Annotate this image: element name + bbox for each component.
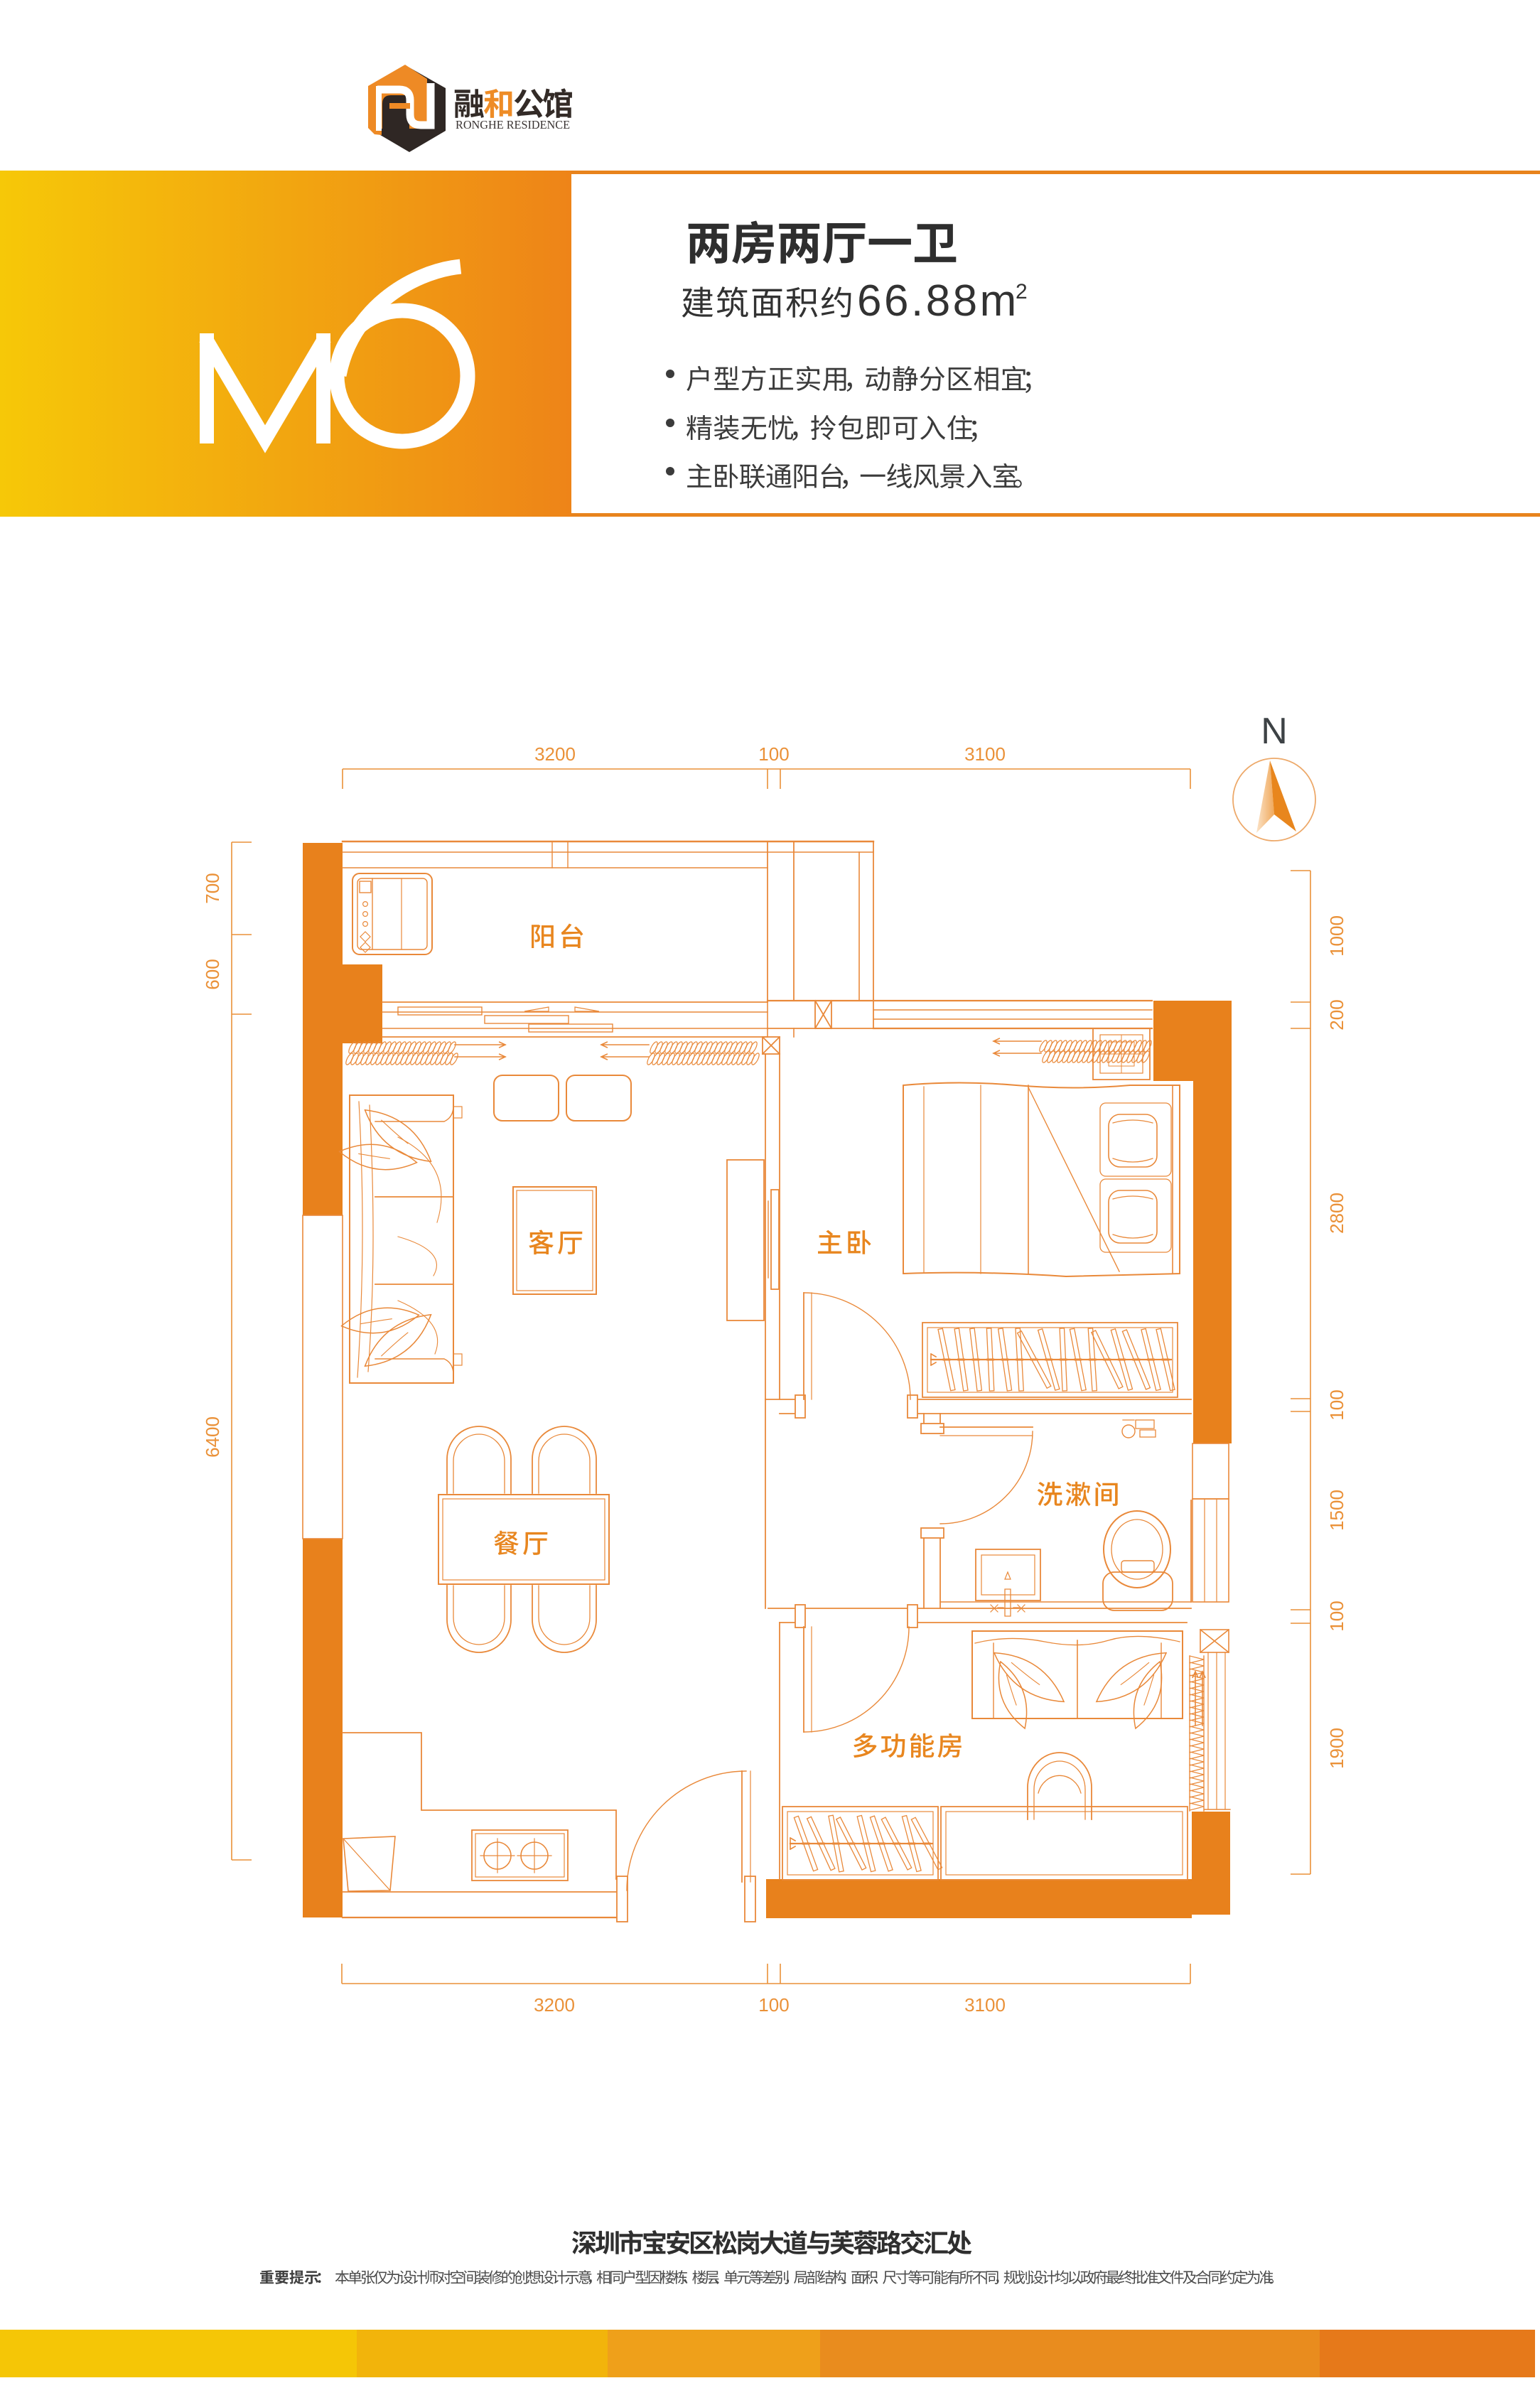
svg-text:RONGHE RESIDENCE: RONGHE RESIDENCE	[456, 118, 570, 131]
svg-text:6400: 6400	[202, 1416, 223, 1458]
svg-text:1900: 1900	[1326, 1728, 1347, 1769]
svg-text:100: 100	[758, 743, 789, 765]
svg-text:1000: 1000	[1326, 915, 1347, 957]
svg-text:2: 2	[1016, 280, 1028, 303]
svg-text:3100: 3100	[964, 1994, 1006, 2016]
svg-text:3200: 3200	[534, 743, 576, 765]
svg-text:N: N	[1261, 711, 1288, 752]
svg-text:100: 100	[1326, 1601, 1347, 1631]
svg-text:3200: 3200	[534, 1994, 575, 2016]
svg-text:700: 700	[202, 873, 223, 903]
svg-text:100: 100	[758, 1994, 789, 2016]
svg-text:3100: 3100	[964, 743, 1006, 765]
svg-text:66.88m: 66.88m	[857, 276, 1019, 326]
svg-text:1500: 1500	[1326, 1490, 1347, 1531]
svg-text:2800: 2800	[1326, 1193, 1347, 1234]
svg-text:200: 200	[1326, 999, 1347, 1030]
svg-text:100: 100	[1326, 1389, 1347, 1420]
svg-text:600: 600	[202, 959, 223, 989]
